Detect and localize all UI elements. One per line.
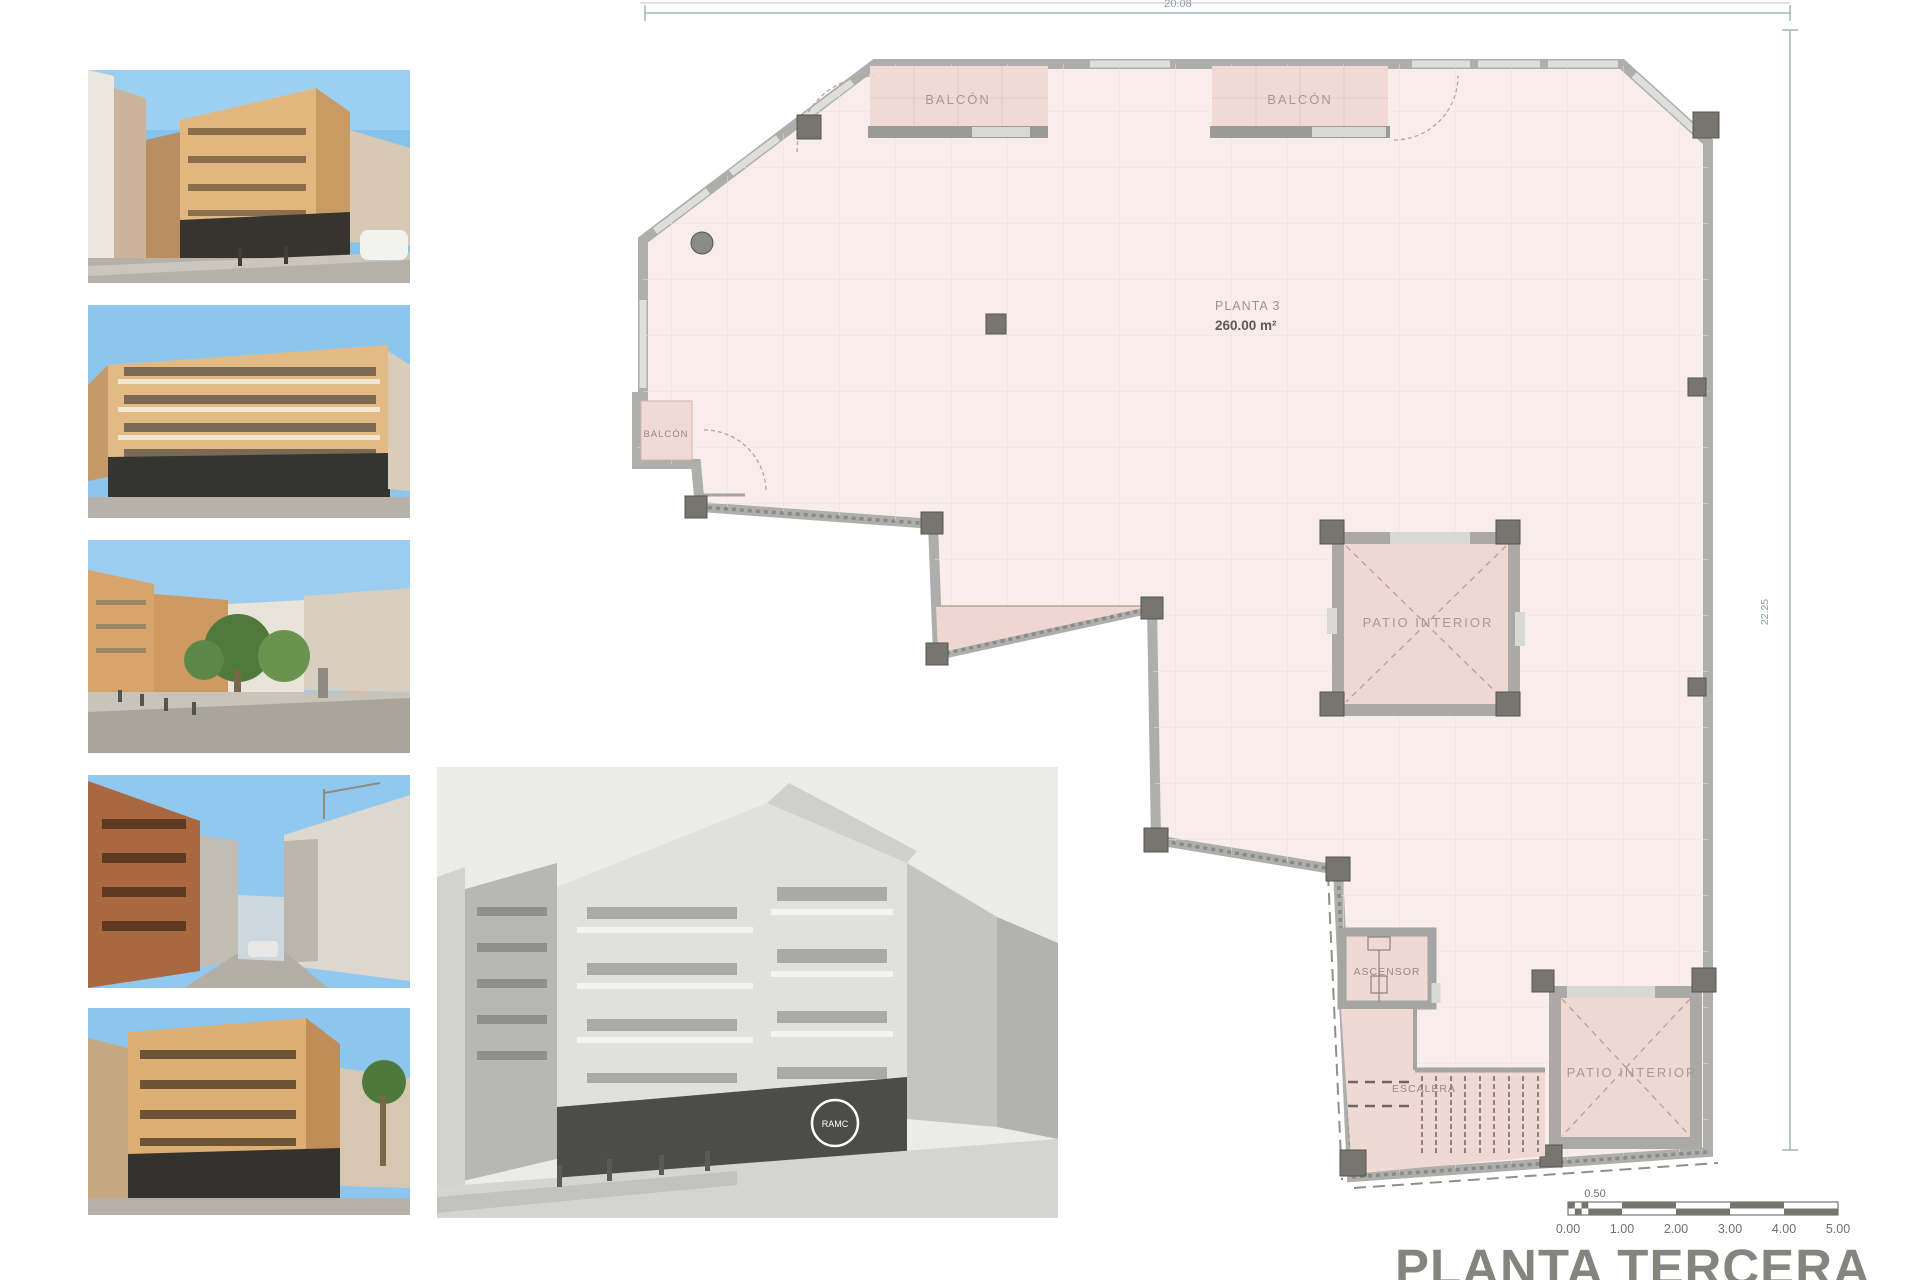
balcony-top-left: BALCÓN [868,66,1048,138]
dimension-right: 22.25 [1759,30,1798,1150]
floor-name: PLANTA 3 [1215,299,1280,313]
scale-bar: 0.50 0.00 1.00 2.00 3.00 4.00 5.00 [1556,1188,1850,1236]
stairs-label: ESCALERA [1392,1083,1456,1095]
dimension-top: 20.08 [640,0,1790,21]
floor-area: 260.00 m² [1215,318,1277,333]
patio-mid-label: PATIO INTERIOR [1363,615,1494,630]
patio-bottom: PATIO INTERIOR [1532,968,1716,1167]
dimension-top-value: 20.08 [1164,0,1192,10]
scale-tick-5: 5.00 [1826,1222,1850,1236]
balcony-left-label: BALCÓN [643,429,688,440]
scale-tick-3: 3.00 [1718,1222,1742,1236]
balcony-top-right: BALCÓN [1210,66,1390,138]
sheet-title: PLANTA TERCERA [1395,1238,1860,1280]
elevator-label: ASCENSOR [1354,966,1421,978]
patio-bottom-label: PATIO INTERIOR [1567,1065,1698,1080]
scale-tick-2: 2.00 [1664,1222,1688,1236]
patio-mid: PATIO INTERIOR [1320,520,1520,716]
scale-tick-4: 4.00 [1772,1222,1796,1236]
balcony-top-right-label: BALCÓN [1267,92,1332,107]
floor-plan: BALCÓN BALCÓN BALCÓN [0,0,1920,1280]
wedge-terrace [936,606,1152,653]
scale-half-label: 0.50 [1584,1188,1605,1200]
plan-sheet: RAMC [0,0,1920,1280]
dimension-right-value: 22.25 [1759,599,1771,625]
elevator: ASCENSOR [1342,932,1436,1005]
scale-tick-0: 0.00 [1556,1222,1580,1236]
balcony-top-left-label: BALCÓN [925,92,990,107]
scale-tick-1: 1.00 [1610,1222,1634,1236]
plan-outline [637,64,1708,1177]
